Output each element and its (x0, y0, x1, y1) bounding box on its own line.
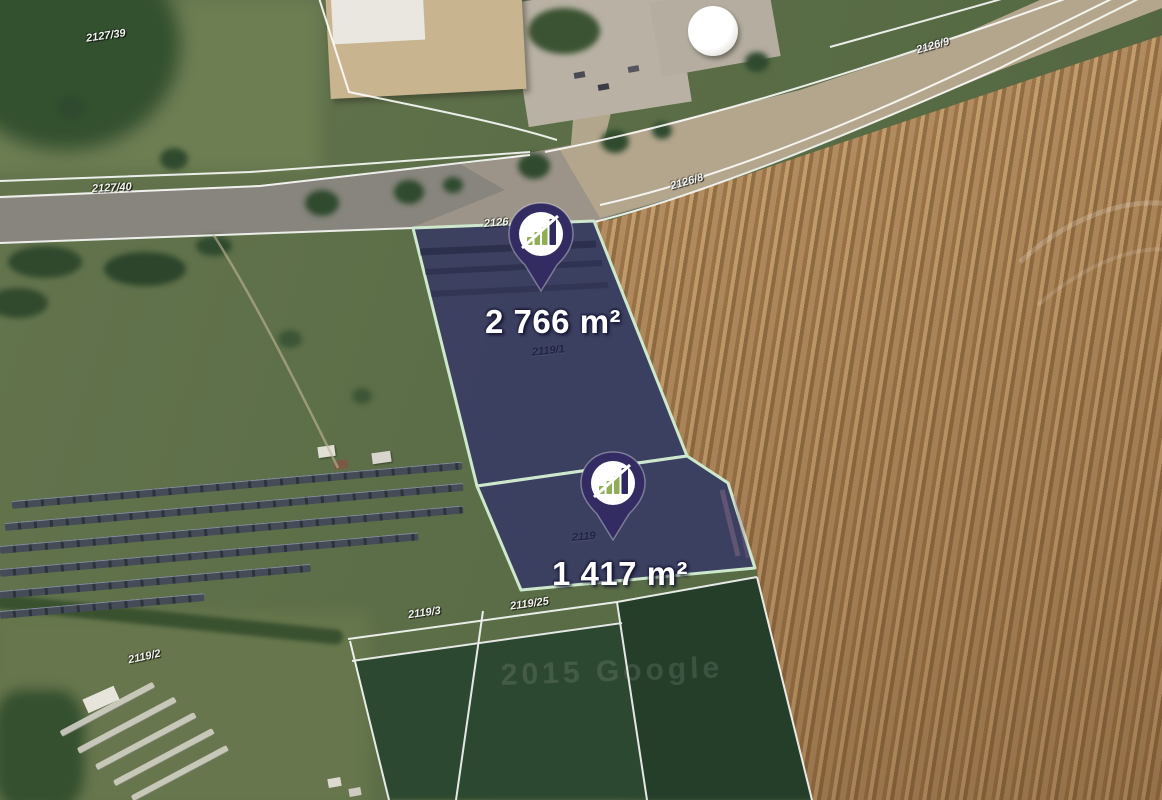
parcel-area-label: 1 417 m² (552, 555, 688, 593)
dirt-track (213, 234, 338, 468)
cadastral-label: 2127/40 (92, 181, 132, 195)
parcel-pin[interactable] (506, 201, 576, 293)
satellite-map[interactable]: 2015 Google 2127/39 2127/40 2126/9 2126/… (0, 0, 1162, 800)
parcel-pin[interactable] (578, 450, 648, 542)
parcel-area-label: 2 766 m² (485, 303, 621, 341)
